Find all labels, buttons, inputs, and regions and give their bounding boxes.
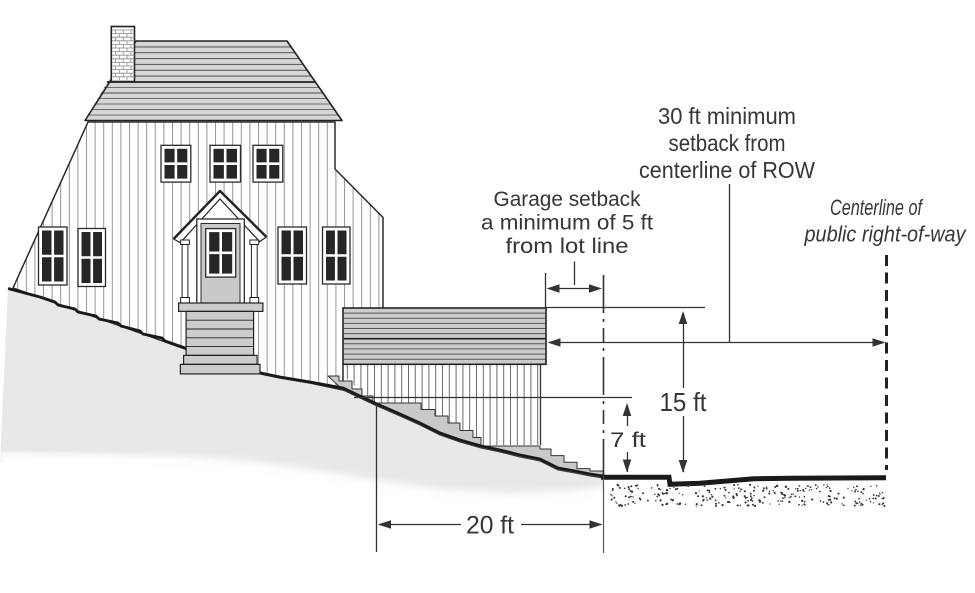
- svg-text:centerline of ROW: centerline of ROW: [639, 157, 815, 183]
- svg-text:public right-of-way: public right-of-way: [804, 222, 968, 247]
- svg-text:a minimum of 5 ft: a minimum of 5 ft: [481, 211, 653, 235]
- svg-text:20 ft: 20 ft: [466, 512, 514, 540]
- svg-text:7 ft: 7 ft: [610, 429, 646, 452]
- svg-text:15 ft: 15 ft: [660, 387, 708, 417]
- svg-text:from lot line: from lot line: [506, 234, 629, 258]
- svg-text:30 ft minimum: 30 ft minimum: [658, 103, 796, 129]
- svg-text:setback from: setback from: [669, 130, 786, 156]
- svg-text:Garage setback: Garage setback: [494, 187, 641, 211]
- svg-text:Centerline of: Centerline of: [830, 195, 924, 220]
